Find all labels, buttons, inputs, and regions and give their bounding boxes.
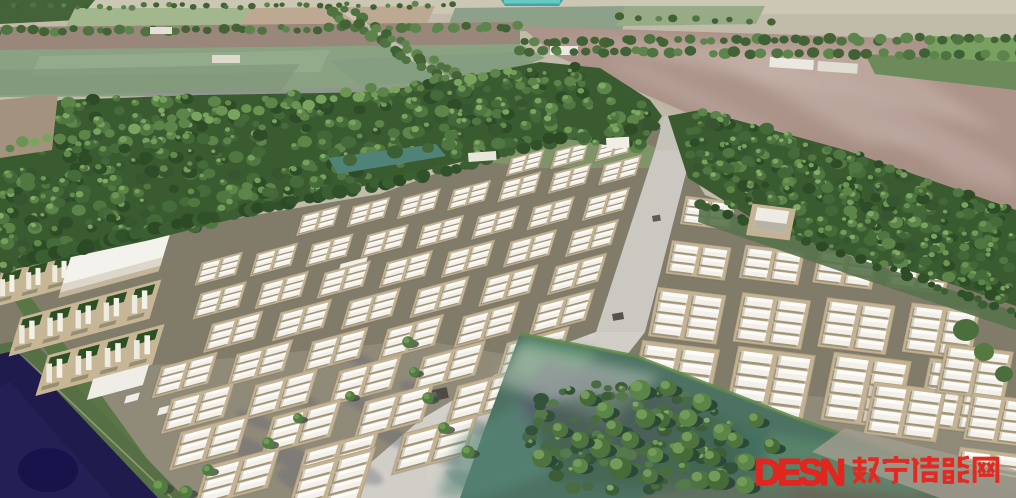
svg-text:DESN: DESN bbox=[754, 452, 846, 493]
